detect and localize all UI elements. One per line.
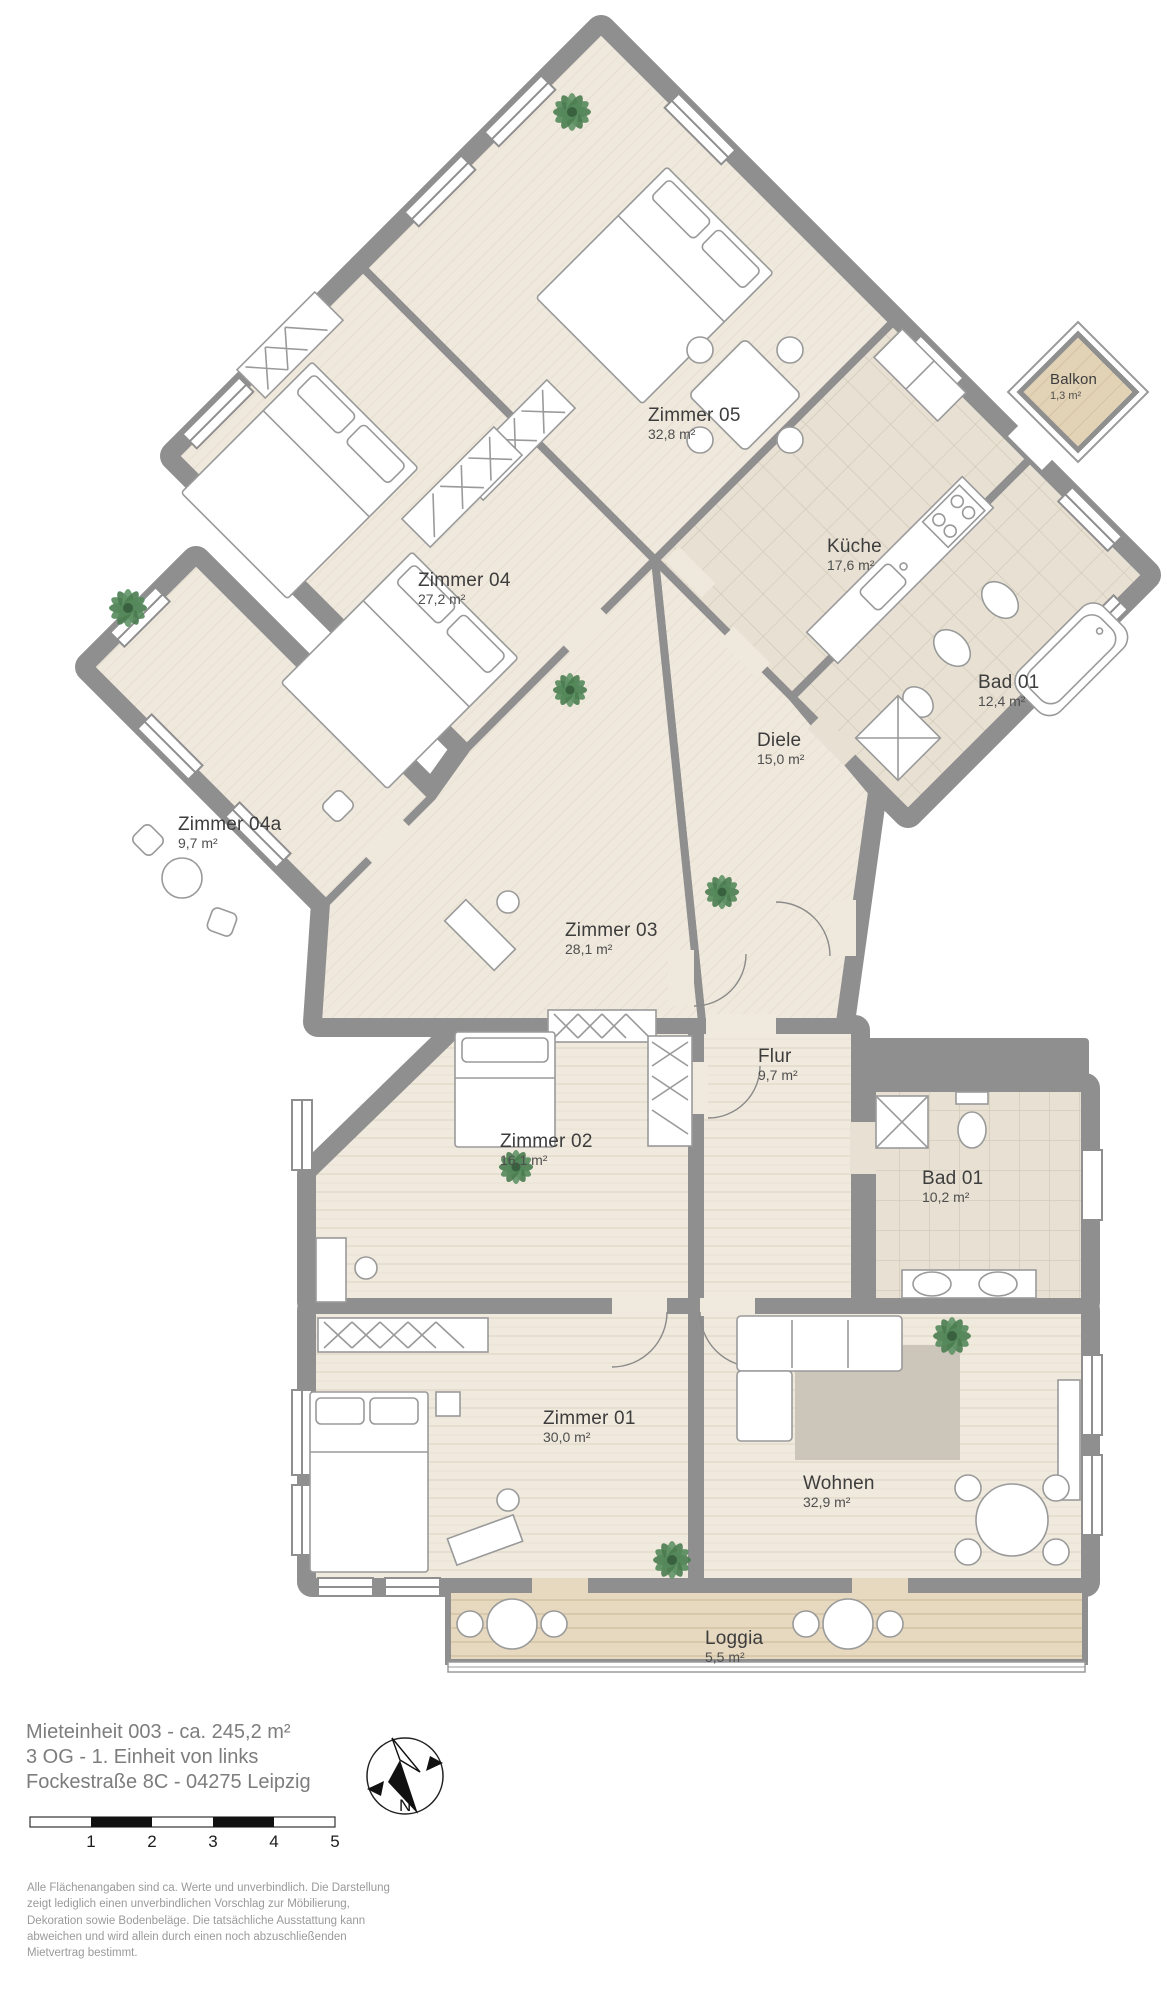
title-line-floor: 3 OG - 1. Einheit von links bbox=[26, 1745, 311, 1770]
toilet-tank bbox=[956, 1092, 988, 1104]
disclaimer-line: abweichen und wird allein durch einen no… bbox=[27, 1929, 390, 1945]
title-line-address: Fockestraße 8C - 04275 Leipzig bbox=[26, 1770, 311, 1795]
chair bbox=[793, 1611, 819, 1637]
chair bbox=[687, 427, 713, 453]
disclaimer: Alle Flächenangaben sind ca. Werte und u… bbox=[27, 1880, 390, 1961]
scale-tick-2: 2 bbox=[147, 1832, 156, 1852]
bed bbox=[310, 1392, 428, 1572]
title-block: Mieteinheit 003 - ca. 245,2 m² 3 OG - 1.… bbox=[26, 1720, 311, 1795]
chair bbox=[497, 891, 519, 913]
bed bbox=[455, 1032, 555, 1147]
chair bbox=[687, 337, 713, 363]
dining-table bbox=[976, 1484, 1048, 1556]
chair bbox=[955, 1475, 981, 1501]
scale-tick-5: 5 bbox=[330, 1832, 339, 1852]
desk bbox=[316, 1238, 346, 1302]
wardrobe bbox=[648, 1036, 692, 1146]
scale-tick-4: 4 bbox=[269, 1832, 278, 1852]
chair bbox=[497, 1489, 519, 1511]
chair bbox=[1043, 1475, 1069, 1501]
scale-tick-3: 3 bbox=[208, 1832, 217, 1852]
chair bbox=[130, 822, 165, 857]
wardrobe bbox=[318, 1318, 488, 1352]
round-table bbox=[162, 858, 202, 898]
scale-tick-1: 1 bbox=[86, 1832, 95, 1852]
title-line-unit: Mieteinheit 003 - ca. 245,2 m² bbox=[26, 1720, 311, 1745]
toilet bbox=[958, 1112, 986, 1148]
chair bbox=[355, 1257, 377, 1279]
scale-bar bbox=[30, 1817, 335, 1827]
wardrobe bbox=[548, 1010, 656, 1042]
disclaimer-line: Dekoration sowie Bodenbeläge. Die tatsäc… bbox=[27, 1913, 390, 1929]
disclaimer-line: Alle Flächenangaben sind ca. Werte und u… bbox=[27, 1880, 390, 1896]
disclaimer-line: Mietvertrag bestimmt. bbox=[27, 1945, 390, 1961]
floorplan-canvas bbox=[0, 0, 1167, 2000]
chair bbox=[1043, 1539, 1069, 1565]
round-table bbox=[487, 1599, 537, 1649]
round-table bbox=[823, 1599, 873, 1649]
nightstand bbox=[436, 1392, 460, 1416]
chair bbox=[457, 1611, 483, 1637]
chair bbox=[955, 1539, 981, 1565]
chair bbox=[877, 1611, 903, 1637]
chair bbox=[777, 337, 803, 363]
north-label: N bbox=[399, 1796, 411, 1816]
floor-flur bbox=[700, 1030, 855, 1302]
shower bbox=[876, 1096, 928, 1148]
sink bbox=[979, 1272, 1017, 1296]
sink bbox=[913, 1272, 951, 1296]
chair bbox=[541, 1611, 567, 1637]
floorplan-page: Zimmer 0532,8 m² Küche17,6 m² Balkon1,3 … bbox=[0, 0, 1167, 2000]
disclaimer-line: zeigt lediglich einen unverbindlichen Vo… bbox=[27, 1896, 390, 1912]
chair bbox=[206, 906, 239, 937]
chair bbox=[777, 427, 803, 453]
